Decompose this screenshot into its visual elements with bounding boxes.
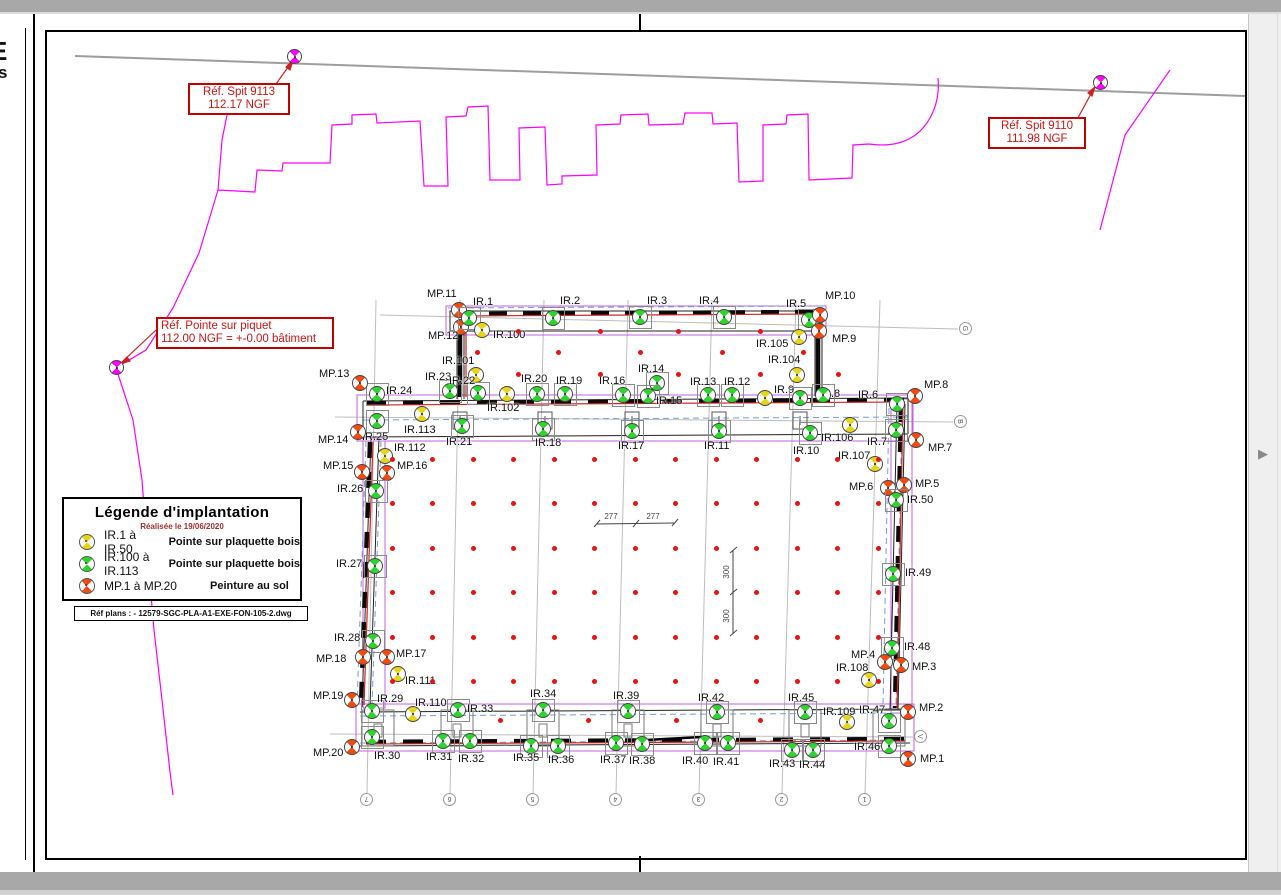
legend-desc: Pointe sur plaquette bois <box>169 558 300 570</box>
legend-row-mp1-20: MP.1 à MP.20 Peinture au sol <box>64 575 300 597</box>
dimension-lines <box>594 519 737 636</box>
wall-lines <box>360 311 910 746</box>
ref-spit-9113-annotation: Réf. Spit 9113 112.17 NGF <box>188 83 290 115</box>
annotation-line: Réf. Pointe sur piquet <box>161 320 329 333</box>
existing-buildings-outline <box>218 100 869 192</box>
dimension-texts: 277 277 300 300 <box>604 512 731 623</box>
ref-spit-9110-annotation: Réf. Spit 9110 111.98 NGF <box>988 117 1086 149</box>
bottom-dim-mark <box>646 737 702 740</box>
ref-piquet-annotation: Réf. Pointe sur piquet 112.00 NGF = +-0.… <box>156 317 334 349</box>
axis-red-lines <box>364 314 905 744</box>
annotation-line: 111.98 NGF <box>993 133 1081 146</box>
dim-300-top: 300 <box>722 565 731 579</box>
legend-row-ir100-113: IR.100 à IR.113 Pointe sur plaquette boi… <box>64 553 300 575</box>
existing-buildings-arc <box>869 78 938 145</box>
plan-linework: 277 277 300 300 <box>0 0 1281 895</box>
foundation-dashed-lines <box>357 306 908 743</box>
legend-row-ir1-50: IR.1 à IR.50 Pointe sur plaquette bois <box>64 531 300 553</box>
dim-300-bottom: 300 <box>722 609 731 623</box>
legend-title: Légende d'implantation <box>64 504 300 521</box>
legend-subtitle: Réalisée le 19/06/2020 <box>64 522 300 531</box>
boundary-left <box>117 190 218 795</box>
yellow-point-icon <box>79 534 95 550</box>
legend-range: IR.100 à IR.113 <box>104 550 160 578</box>
legend-desc: Pointe sur plaquette bois <box>169 536 300 548</box>
ref-plan-box: Réf plans : - 12579-SGC-PLA-A1-EXE-FON-1… <box>74 606 308 621</box>
legend-box: Légende d'implantation Réalisée le 19/06… <box>62 497 302 601</box>
legend-range: MP.1 à MP.20 <box>104 579 201 593</box>
dim-277-left: 277 <box>604 512 618 521</box>
green-point-icon <box>79 556 95 572</box>
annotation-line: 112.17 NGF <box>193 99 285 112</box>
legend-desc: Peinture au sol <box>210 580 289 592</box>
annotation-line: 112.00 NGF = +-0.00 bâtiment <box>161 333 329 346</box>
annotation-line: Réf. Spit 9113 <box>193 86 285 99</box>
dim-277-right: 277 <box>646 512 660 521</box>
red-point-icon <box>79 578 95 594</box>
annotation-line: Réf. Spit 9110 <box>993 120 1081 133</box>
setting-out-outline <box>356 306 914 751</box>
